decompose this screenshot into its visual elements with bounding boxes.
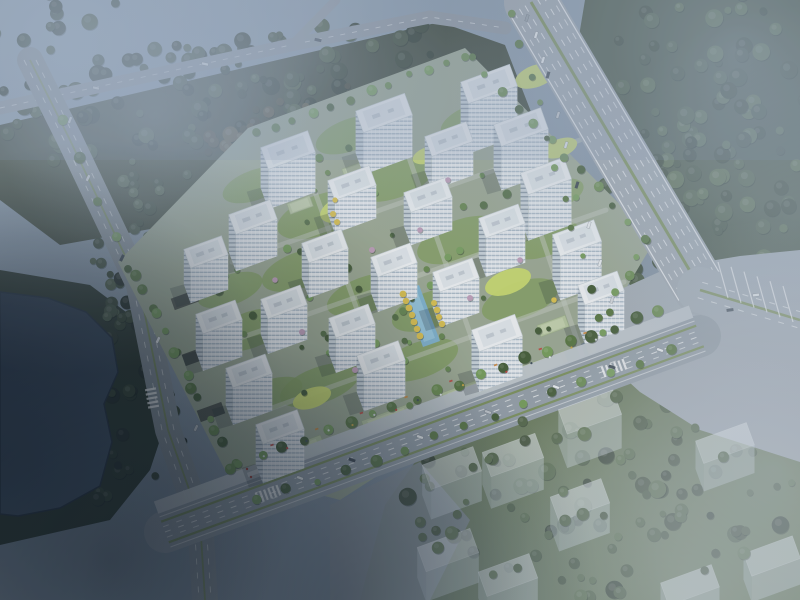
scene-svg xyxy=(0,0,800,600)
aerial-rendering-image xyxy=(0,0,800,600)
color-grade xyxy=(0,0,800,600)
